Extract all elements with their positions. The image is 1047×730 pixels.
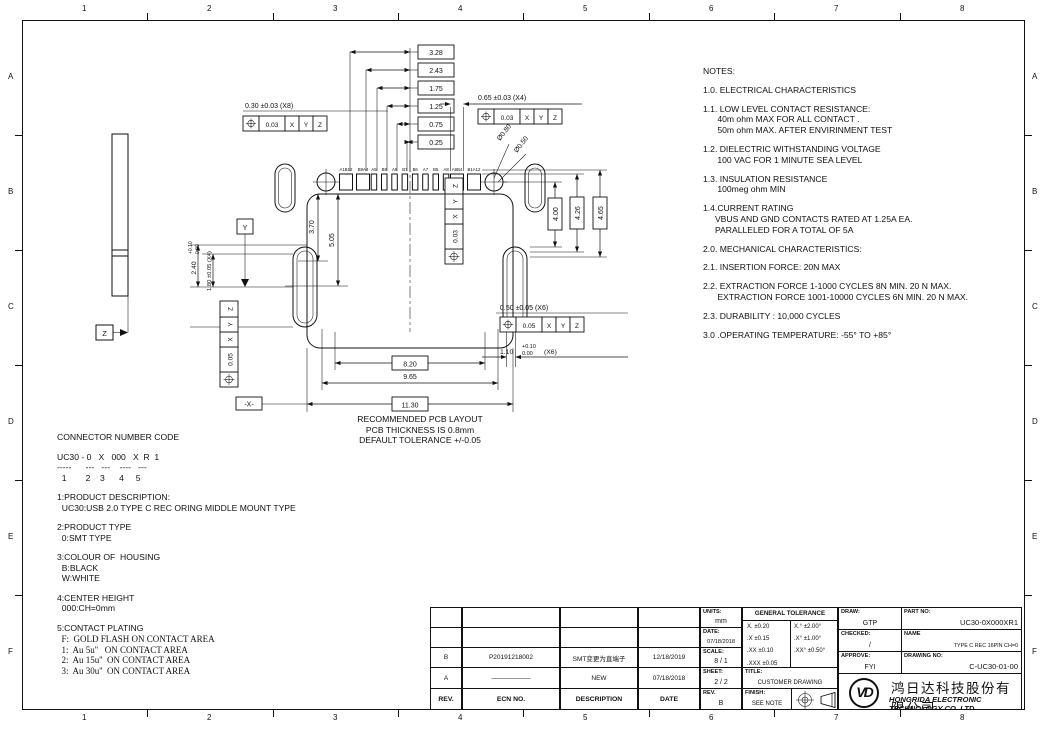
- svg-text:1.10: 1.10: [500, 349, 513, 356]
- description-header: DESCRIPTION: [560, 688, 638, 710]
- svg-text:1.25: 1.25: [429, 104, 443, 111]
- svg-text:X: X: [525, 115, 530, 122]
- svg-text:3.70: 3.70: [309, 220, 316, 234]
- third-angle-projection-icon: [793, 690, 838, 710]
- svg-text:0.05: 0.05: [228, 353, 235, 366]
- datum-z-label: Z: [102, 329, 107, 338]
- company-cell: VD 鸿日达科技股份有限公司 HONGRIDA ELECTRONIC TECHN…: [838, 673, 1022, 710]
- rev-a-date: 07/18/2018: [638, 667, 700, 689]
- note-item: 2.1. INSERTION FORCE: 20N MAX: [703, 262, 1023, 273]
- note-item: 2.2. EXTRACTION FORCE 1-1000 CYCLES 8N M…: [703, 281, 1023, 303]
- zone-col: 5: [583, 713, 587, 722]
- finish-cell: FINISH:SEE NOTE: [742, 688, 792, 710]
- svg-text:A5: A5: [371, 167, 377, 172]
- rev-cell: REV.B: [700, 688, 742, 710]
- side-view: Z: [96, 134, 128, 340]
- zone-col: 8: [960, 4, 964, 13]
- svg-text:9.65: 9.65: [403, 374, 417, 381]
- zone-row: D: [8, 417, 14, 426]
- svg-text:Ø0.50: Ø0.50: [513, 135, 530, 154]
- svg-text:B9A4: B9A4: [358, 167, 369, 172]
- svg-text:0.75: 0.75: [429, 122, 443, 129]
- general-tolerance-table: X. ±0.20X.° ±2.00° .X ±0.15.X° ±1.00° .X…: [742, 620, 838, 668]
- zone-col: 6: [709, 713, 713, 722]
- code-section: 2:PRODUCT TYPE 0:SMT TYPE: [57, 522, 387, 543]
- zone-col: 6: [709, 4, 713, 13]
- zone-col: 7: [834, 4, 838, 13]
- svg-text:Z: Z: [575, 323, 579, 330]
- zone-col: 4: [458, 713, 462, 722]
- rev-b-date: 12/18/2019: [638, 647, 700, 668]
- date-header: DATE: [638, 688, 700, 710]
- svg-text:4.00: 4.00: [553, 207, 560, 221]
- plating-heading: 5:CONTACT PLATING: [57, 623, 387, 634]
- approve-cell: APPROVE:FYI: [838, 651, 902, 674]
- zone-col: 2: [207, 713, 211, 722]
- svg-text:X: X: [228, 337, 235, 342]
- zone-row: D: [1032, 417, 1038, 426]
- ecn-header: ECN NO.: [462, 688, 560, 710]
- units-cell: UNITS:mm: [700, 607, 742, 628]
- zone-col: 3: [333, 4, 337, 13]
- svg-text:A1B12: A1B12: [340, 167, 354, 172]
- svg-text:Y: Y: [561, 323, 566, 330]
- rev-b-ecn: P20191218002: [462, 647, 560, 668]
- projection-symbol-cell: [791, 688, 838, 710]
- company-name-en: HONGRIDA ELECTRONIC TECHNOLOGY CO.,LTD.: [889, 695, 1021, 710]
- svg-text:Y: Y: [304, 122, 309, 129]
- wide-pad-dimension: 0.65 ±0.03 (X4) 0.03 X Y Z: [440, 95, 582, 171]
- svg-text:2.43: 2.43: [429, 68, 443, 75]
- notes-block: NOTES: 1.0. ELECTRICAL CHARACTERISTICS 1…: [703, 66, 1023, 340]
- svg-text:A9B4: A9B4: [452, 167, 463, 172]
- svg-text:0.00: 0.00: [522, 351, 533, 357]
- note-item: 3.0 .OPERATING TEMPERATURE: -55° TO +85°: [703, 330, 1023, 341]
- right-slot-dimensions: 0.50 ±0.05 (X6) 0.05 X Y Z 1.10 +0.10 0.…: [482, 305, 628, 367]
- svg-text:2.40: 2.40: [191, 261, 198, 274]
- svg-text:+0.10: +0.10: [522, 344, 536, 350]
- drawing-no-cell: DRAWING NO:C-UC30-01-00: [901, 651, 1022, 674]
- svg-text:B1A12: B1A12: [468, 167, 482, 172]
- svg-text:X: X: [453, 214, 460, 219]
- drawing-sheet: 1 2 3 4 5 6 7 8 1 2 3 4 5 6 7 8 A B C D …: [0, 0, 1047, 730]
- zone-col: 8: [960, 713, 964, 722]
- zone-row: A: [8, 72, 13, 81]
- zone-col: 1: [82, 713, 86, 722]
- zone-row: F: [1032, 647, 1037, 656]
- svg-text:0.05: 0.05: [523, 323, 536, 330]
- code-line: UC30 - 0 X 000 X R 1: [57, 452, 387, 463]
- pcb-layout-drawing: Z: [50, 22, 710, 462]
- svg-text:(X6): (X6): [544, 349, 557, 356]
- svg-text:0.30 ±0.03 (X8): 0.30 ±0.03 (X8): [245, 103, 293, 110]
- date-cell: DATE:07/18/2018: [700, 627, 742, 648]
- svg-text:Z: Z: [453, 184, 460, 188]
- svg-text:Z: Z: [318, 122, 322, 129]
- rev-b: B: [430, 647, 462, 668]
- zone-col: 5: [583, 4, 587, 13]
- notes-heading: NOTES:: [703, 66, 1023, 77]
- rev-header: REV.: [430, 688, 462, 710]
- rev-a: A: [430, 667, 462, 689]
- sheet-cell: SHEET:2 / 2: [700, 667, 742, 689]
- svg-text:0.50 ±0.05 (X6): 0.50 ±0.05 (X6): [500, 305, 548, 312]
- pcb-layout-note: RECOMMENDED PCB LAYOUT PCB THICKNESS IS …: [300, 414, 540, 446]
- rev-a-desc: NEW: [560, 667, 638, 689]
- svg-text:1.75: 1.75: [429, 86, 443, 93]
- svg-text:4.65: 4.65: [598, 206, 605, 220]
- pin-labels: A1B12 B9A4 A5 B8 A6 B7 B6 A7 B5 A8 A9B4 …: [340, 167, 482, 172]
- zone-col: 7: [834, 713, 838, 722]
- zone-row: C: [8, 302, 14, 311]
- zone-col: 3: [333, 713, 337, 722]
- zone-row: B: [8, 187, 13, 196]
- left-slot-dimensions: 2.40 +0.10 0.00 1.80 ±0.05 (X4) 0.05 X Y…: [188, 219, 307, 387]
- zone-row: B: [1032, 187, 1037, 196]
- svg-text:Y: Y: [453, 199, 460, 204]
- svg-text:A7: A7: [423, 167, 429, 172]
- zone-col: 4: [458, 4, 462, 13]
- checked-cell: CHECKED:/: [838, 629, 902, 652]
- code-dashes: ----- --- --- ---- ---: [57, 462, 387, 473]
- part-no-cell: PART NO:UC30-0X000XR1: [901, 607, 1022, 630]
- scale-cell: SCALE:8 / 1: [700, 647, 742, 668]
- rev-a-ecn: ——————: [462, 667, 560, 689]
- svg-text:Z: Z: [228, 307, 235, 311]
- note-item: 2.0. MECHANICAL CHARACTERISTICS:: [703, 244, 1023, 255]
- name-cell: NAMETYPE C REC 16PIN CH=0: [901, 629, 1022, 652]
- code-section: 1:PRODUCT DESCRIPTION: UC30:USB 2.0 TYPE…: [57, 492, 387, 513]
- title-cell: TITLE:CUSTOMER DRAWING: [742, 667, 838, 689]
- svg-text:Y: Y: [539, 115, 544, 122]
- svg-text:0.65 ±0.03 (X4): 0.65 ±0.03 (X4): [478, 95, 526, 102]
- note-item: 1.2. DIELECTRIC WITHSTANDING VOLTAGE 100…: [703, 144, 1023, 166]
- zone-row: E: [1032, 532, 1037, 541]
- svg-text:8.20: 8.20: [403, 362, 417, 369]
- zone-col: 1: [82, 4, 86, 13]
- note-item: 1.1. LOW LEVEL CONTACT RESISTANCE: 40m o…: [703, 104, 1023, 136]
- inner-position-fcf: 0.03 X Y Z: [445, 178, 463, 264]
- svg-text:Ø0.80: Ø0.80: [496, 123, 513, 142]
- note-item: 2.3. DURABILITY : 10,000 CYCLES: [703, 311, 1023, 322]
- svg-text:11.30: 11.30: [402, 403, 419, 410]
- rev-b-desc: SMT变更为直端子: [560, 647, 638, 668]
- zone-row: E: [8, 532, 13, 541]
- svg-text:A8: A8: [443, 167, 449, 172]
- svg-text:0.03: 0.03: [453, 230, 460, 243]
- zone-row: A: [1032, 72, 1037, 81]
- code-section: 4:CENTER HEIGHT 000:CH=0mm: [57, 593, 387, 614]
- company-logo: VD: [849, 678, 879, 708]
- code-section: 3:COLOUR OF HOUSING B:BLACK W:WHITE: [57, 552, 387, 584]
- general-tolerance-heading: GENERAL TOLERANCE: [742, 607, 838, 621]
- svg-text:B6: B6: [413, 167, 419, 172]
- datum-x-label: -X-: [244, 402, 254, 409]
- svg-text:0.00: 0.00: [195, 244, 201, 254]
- note-item: 1.0. ELECTRICAL CHARACTERISTICS: [703, 85, 1023, 96]
- svg-text:0.03: 0.03: [266, 122, 279, 129]
- note-item: 1.4.CURRENT RATING VBUS AND GND CONTACTS…: [703, 203, 1023, 235]
- svg-text:X: X: [290, 122, 295, 129]
- code-numbers: 1 2 3 4 5: [57, 473, 387, 484]
- svg-text:B8: B8: [382, 167, 388, 172]
- svg-text:Z: Z: [553, 115, 557, 122]
- note-item: 1.3. INSULATION RESISTANCE 100meg ohm MI…: [703, 174, 1023, 196]
- svg-text:0.03: 0.03: [501, 115, 514, 122]
- svg-text:3.28: 3.28: [429, 50, 443, 57]
- svg-text:Y: Y: [228, 322, 235, 327]
- plating-lines: F: GOLD FLASH ON CONTACT AREA 1: Au 5u''…: [57, 634, 387, 676]
- title-block: B P20191218002 SMT变更为直端子 12/18/2019 A ——…: [430, 607, 1022, 710]
- datum-y-label: Y: [242, 223, 247, 232]
- bottom-horizontal-dimensions: 8.20 9.65 11.30 -X-: [236, 329, 513, 412]
- svg-text:B5: B5: [433, 167, 439, 172]
- zone-row: F: [8, 647, 13, 656]
- svg-text:1.80 ±0.05 (X4): 1.80 ±0.05 (X4): [207, 251, 213, 291]
- svg-text:5.05: 5.05: [329, 233, 336, 247]
- stack-dimensions: 3.28 2.43 1.75 1.25 0.75 0.25: [350, 45, 454, 172]
- zone-row: C: [1032, 302, 1038, 311]
- svg-text:4.26: 4.26: [575, 206, 582, 220]
- svg-text:0.25: 0.25: [429, 140, 443, 147]
- draw-cell: DRAW:GTP: [838, 607, 902, 630]
- connector-code-block: CONNECTOR NUMBER CODE UC30 - 0 X 000 X R…: [57, 432, 387, 676]
- svg-text:+0.10: +0.10: [188, 241, 194, 254]
- zone-col: 2: [207, 4, 211, 13]
- svg-text:X: X: [547, 323, 552, 330]
